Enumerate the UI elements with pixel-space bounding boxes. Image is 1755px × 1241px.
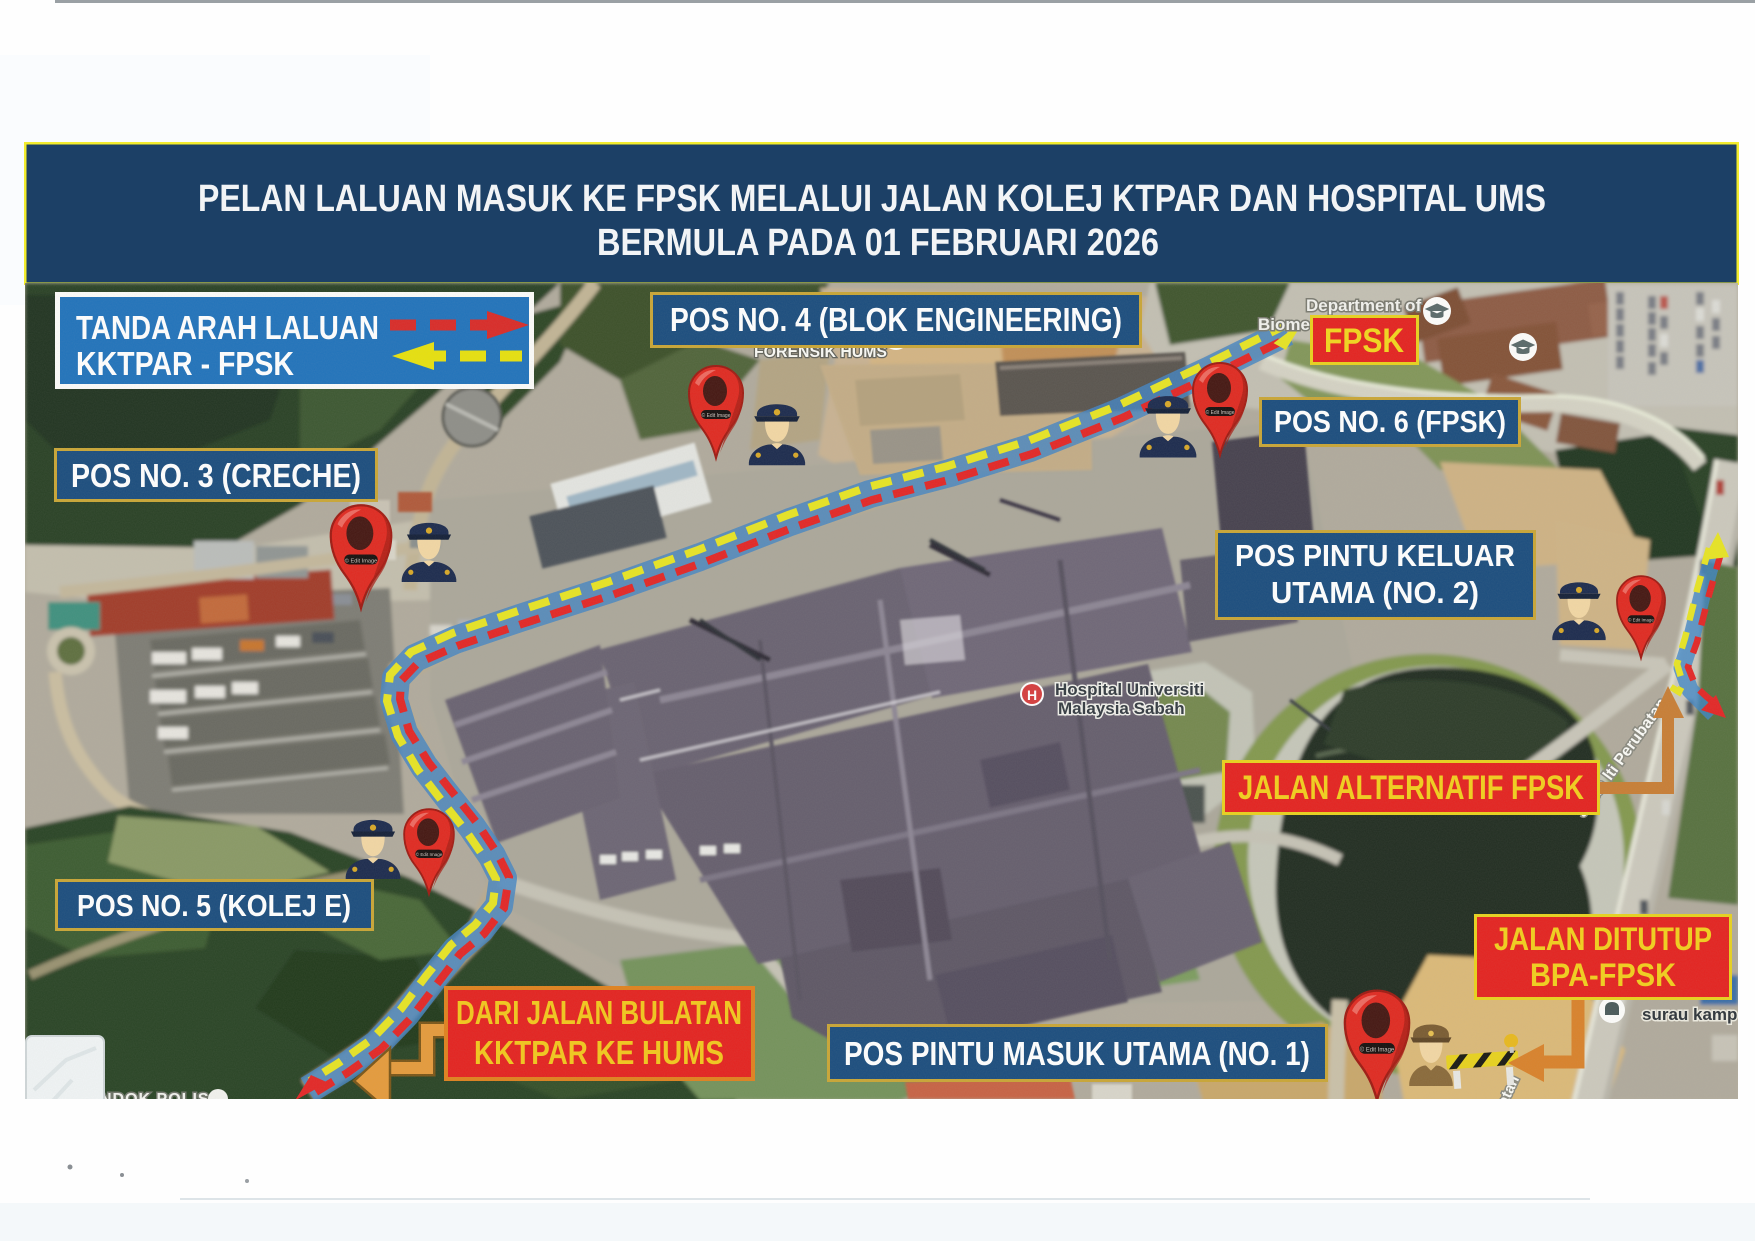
svg-text:PELAN LALUAN MASUK KE FPSK MEL: PELAN LALUAN MASUK KE FPSK MELALUI JALAN…: [198, 178, 1546, 220]
svg-text:BERMULA PADA 01 FEBRUARI 2026: BERMULA PADA 01 FEBRUARI 2026: [597, 222, 1159, 264]
